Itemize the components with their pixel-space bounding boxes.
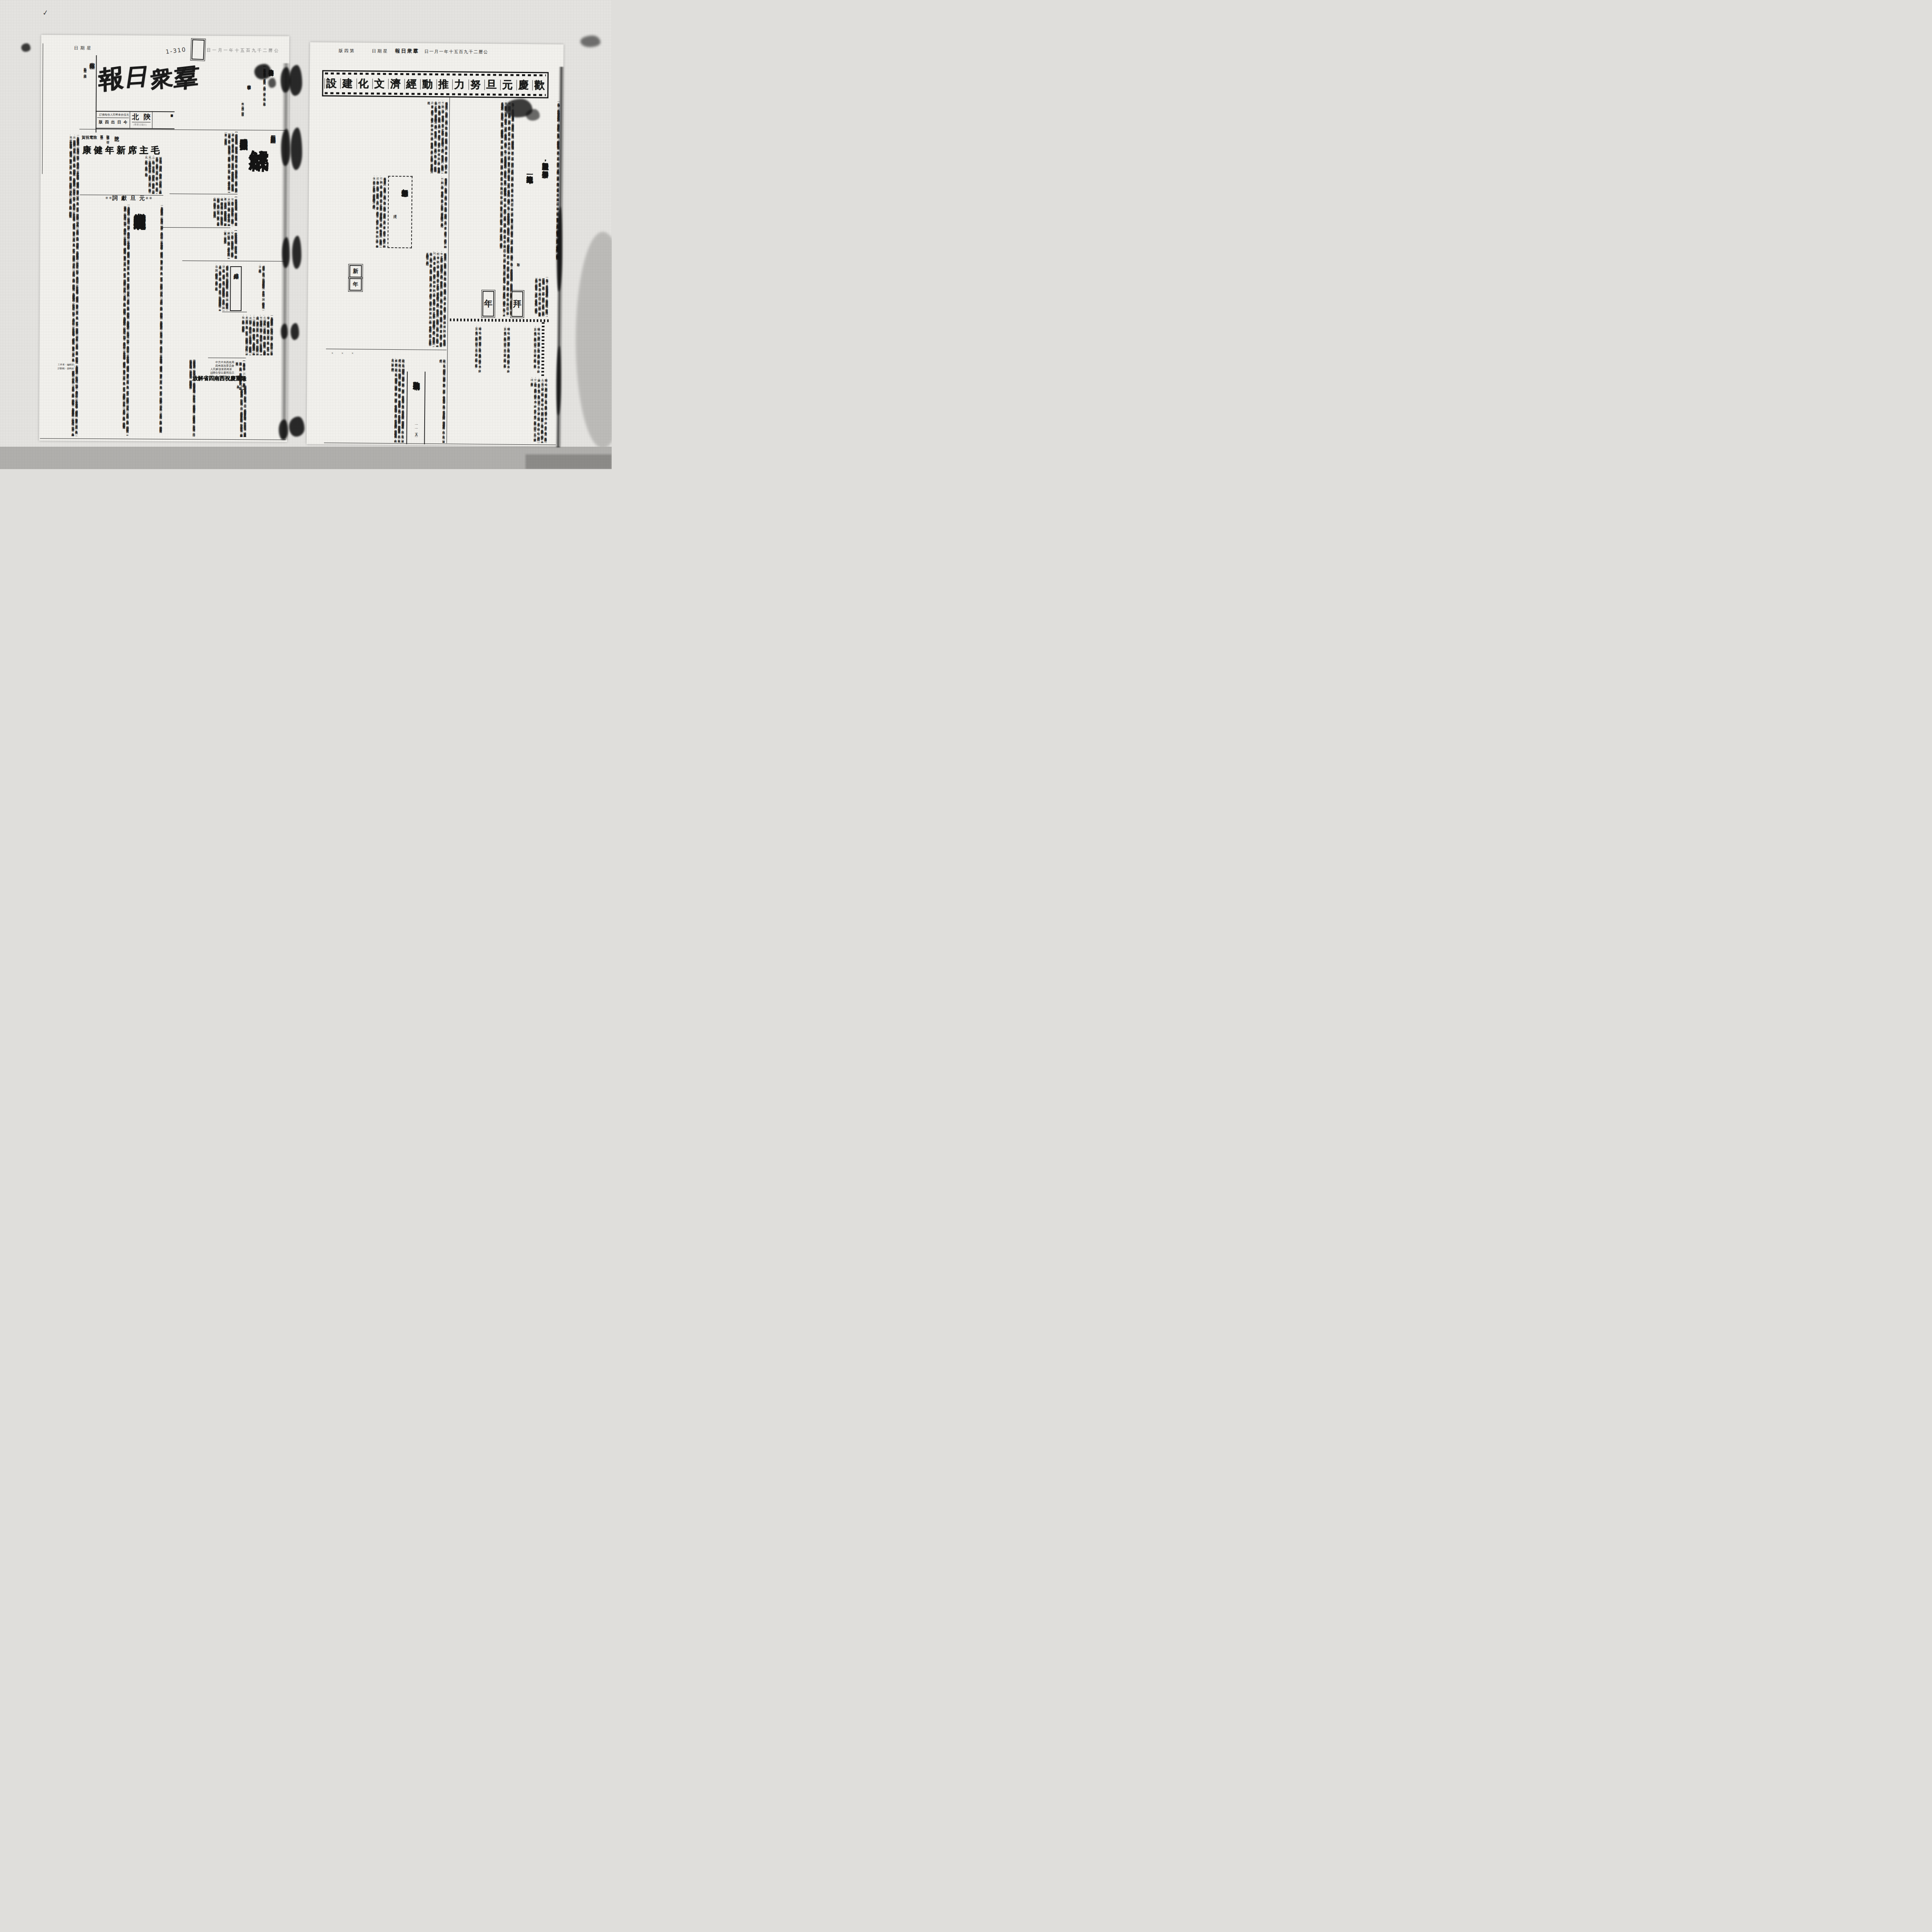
paper-notice-body: 本報三、二兩日共四版，四日照常出版。	[238, 100, 244, 130]
subscription-info: 訂閱及廣告費另照郵局轉各地郵局辦理	[153, 112, 173, 128]
zigzag-divider-right	[541, 322, 544, 376]
newspaper-scan: ✓ 星期日 1-310 完全 公曆二千九百五十年一月一日 恭賀年禧 為推動一九五…	[0, 0, 612, 469]
fold-blob-3	[282, 237, 290, 268]
bainian-lower-columns: 噯嚨嚀，哈哈哈，我和媽媽把話拉：解放軍到處打勝仗，人民政府成立啦！爸爸給我戴新帽…	[449, 376, 548, 443]
sw-top-rule	[208, 358, 246, 359]
editorial-kicker: 元旦獻詞	[112, 195, 145, 202]
ink-mark-top-left	[21, 43, 31, 52]
paper-notice-title: 本報啓事	[245, 82, 252, 99]
chengdu-body-2: 【本報訊】人民解放軍已勝利結束了成都地區的大殲滅戰。胡宗南匪部已於廿七日被我全部…	[162, 196, 237, 226]
edition-note: 今日出四版	[99, 119, 128, 125]
victory-title: 歡慶勝利年	[410, 376, 421, 421]
page-bottom-rule-right	[324, 443, 556, 445]
ornament-right: ※※	[146, 196, 153, 200]
bainian-box-2: 年	[482, 291, 494, 316]
lead-body-main: 一九四九年過去了。這一年是全國人民在中國共產黨和毛主席領導下獲得偉大勝利的一年。…	[450, 99, 514, 316]
sw-org4: 聯合發出慶祝指示	[210, 371, 234, 375]
editorial-body-far-left: 一九四九年是全國解放戰爭獲得偉大勝利的一年。因為陝北已進入和平建設環境，戰鬥動員…	[40, 134, 79, 436]
intro-top-rule	[182, 260, 285, 261]
small-box-1: 新	[349, 265, 362, 277]
chengdu-body-1: 【本報訊】人民解放軍已勝利結束了成都地區的大殲滅戰。胡宗南匪部已於廿七日被我全部…	[170, 131, 238, 193]
credits-2: 計劃稿・資料組	[57, 367, 74, 371]
zagan-body-lower: 新年是每隔三百六十五天就要過一次的。每次的新年都有各種的情景，引起人們各種的感想…	[326, 250, 447, 347]
intro-body-left: 成都是四川省的省會，西南著名的大城市。匪留在四川的胡宗南匪部及其他國民黨部隊約三…	[162, 263, 229, 311]
small-box-2: 年	[349, 278, 362, 291]
region-label: 陝北	[132, 112, 151, 122]
ink-blob-notice-2	[268, 78, 276, 88]
editorial-body-left: 一九四九年是全國解放戰爭獲得偉大勝利的一年。因為陝北已進入和平建設環境，戰鬥動員…	[79, 204, 130, 436]
paid-stamp: 完全	[192, 39, 205, 60]
edition-right: 第四版	[338, 48, 354, 54]
chengdu-rule-1	[170, 194, 238, 194]
center-fold-blob-5	[289, 417, 304, 437]
band-divider-1	[129, 111, 130, 128]
bainian-poem-mid: 噯嚨嚀，哈哈哈，我和媽媽把話拉：解放軍到處打勝仗，人民政府成立啦！爸爸給我戴新帽…	[493, 325, 510, 373]
scanner-corner-blotch	[526, 454, 612, 469]
ink-art-blob-2	[526, 109, 540, 121]
section-rule-1	[79, 129, 286, 131]
scanner-band-bottom	[0, 447, 612, 469]
intro-body-right: 成都是四川省的省會，西南著名的大城市。匪留在四川的胡宗南匪部及其他國民黨部隊約三…	[241, 263, 265, 310]
paper-name-right: 羣衆日報	[395, 48, 418, 55]
intro-bottom-rule	[222, 312, 247, 312]
victory-rule-right	[424, 372, 425, 444]
smudge-top-right	[580, 36, 600, 47]
greeting-line1: 恭賀年禧	[87, 58, 96, 132]
middle-top-columns: 新年是每隔三百六十五天就要過一次的。每次的新年都有各種的情景，引起人們各種的感想…	[328, 99, 448, 174]
middle-section-rule	[326, 349, 447, 350]
fold-blob-5	[279, 420, 288, 440]
editorial-body-right: 一九四九年是全國解放戰爭獲得偉大勝利的一年。因為陝北已進入和平建設環境，戰鬥動員…	[146, 204, 163, 436]
victory-body-right: 除夕的晚上，歡天喜地，機關的同志們圍繞着火爐，回憶被胡匪蹂躪的故事，暢談勝利的一…	[427, 357, 446, 443]
mao-action: 致電祝賀	[82, 135, 97, 140]
chengdu-body-3: 【本報訊】人民解放軍已勝利結束了成都地區的大殲滅戰。胡宗南匪部已於廿七日被我全部…	[162, 229, 237, 259]
page-left: 星期日 1-310 完全 公曆二千九百五十年一月一日 恭賀年禧 為推動一九五零、…	[39, 35, 289, 442]
price-under-rule	[97, 117, 129, 118]
handwritten-number: 1-310	[165, 46, 187, 55]
lead-body-under-headline: 一九四九年過去了。這一年是全國人民在中國共產黨和毛主席領導下獲得偉大勝利的一年。…	[523, 276, 548, 317]
chengdu-headline: 解放成都	[248, 134, 269, 247]
weekday-right: 星期日	[372, 48, 387, 54]
center-fold-blob-2	[291, 128, 302, 170]
banner-headline: 歡慶元旦努力推動經濟文化建設	[322, 70, 549, 98]
date-line-left: 公曆二千九百五十年一月一日	[207, 48, 279, 54]
victory-body-left: 除夕的晚上，歡天喜地，機關的同志們圍繞着火爐，回憶被胡匪蹂躪的故事，暢談勝利的一…	[325, 356, 405, 443]
zagan-title-box: 新年雜感 澤民	[388, 176, 413, 248]
date-line-right: 公曆二千九百五十年一月一日	[424, 49, 488, 55]
sw-left-columns: 指示號召各地舉行隆重慶祝大會和示威遊行，動員廣大人民進行擴大宣傳。指示指出，慶祝…	[162, 357, 196, 437]
center-fold-blob-4	[291, 323, 299, 340]
fold-blob-2	[281, 129, 291, 166]
zigzag-divider-top	[450, 318, 549, 322]
center-fold-blob-1	[289, 65, 302, 96]
victory-byline: ——五人——	[412, 422, 418, 442]
zagan-body-left: 新年是每隔三百六十五天就要過一次的。每次的新年都有各種的情景，引起人們各種的感想…	[327, 175, 386, 248]
lead-headline-2: 迎接一九五零年	[524, 170, 534, 271]
region-under-rule	[132, 122, 151, 122]
pencil-checkmark: ✓	[42, 8, 50, 17]
masthead-calligraphy: 羣衆日報	[103, 65, 200, 111]
sw-body: 指示號召各地舉行隆重慶祝大會和示威遊行，動員廣大人民進行擴大宣傳。指示指出，慶祝…	[197, 383, 247, 437]
zagan-author: 澤民	[391, 212, 397, 235]
bainian-poem-left: 噯嚨嚀，哈哈哈，我和媽媽把話拉：解放軍到處打勝仗，人民政府成立啦！爸爸給我戴新帽…	[449, 325, 481, 373]
bainian-poem-right: 噯嚨嚀，哈哈哈，我和媽媽把話拉：解放軍到處打勝仗，人民政府成立啦！爸爸給我戴新帽…	[522, 325, 540, 374]
chengdu-rule-2	[162, 227, 230, 228]
cross-marks: × × ×	[331, 351, 355, 356]
greeting-line2: 為推動一九五零、文化建設	[81, 65, 87, 131]
zagan-body-right: 新年是每隔三百六十五天就要過一次的。每次的新年都有各種的情景，引起人們各種的感想…	[412, 175, 447, 248]
scanner-shadow-right	[576, 232, 612, 448]
mid-columns: 一九四九年是全國解放戰爭獲得偉大勝利的一年。因為陝北已進入和平建設環境，戰鬥動員…	[162, 314, 273, 355]
weekday-left: 星期日	[74, 45, 91, 51]
victory-rule-left	[406, 371, 408, 444]
lead-headline-1: 加緊生產，努力學習	[539, 157, 549, 260]
chengdu-subtitle: 殘匪卅萬絕大部份被殲滅	[238, 133, 248, 258]
price-line: 訂價每份人民幣叁拾伍元	[97, 113, 129, 117]
chengdu-kicker: 四川大圍殲戰勝利結束	[269, 131, 276, 204]
masthead-left-rule	[95, 55, 97, 133]
editorial-headline: 繼續艱苦奮鬥全力建設陝北	[131, 204, 146, 397]
fold-blob-4	[281, 324, 288, 339]
page-right: 第四版 星期日 羣衆日報 公曆二千九百五十年一月一日 歡慶元旦努力推動經濟文化建…	[306, 42, 563, 446]
region-sub: （羣衆日報社）	[132, 123, 148, 127]
ornament-left: ※※	[105, 196, 113, 200]
lead-author: 劉壽亭	[514, 260, 520, 277]
bainian-box-1: 拜	[511, 291, 523, 317]
page-bottom-rule-left	[40, 438, 286, 440]
sw-headline: 隆重慶祝西南四省解放	[197, 375, 247, 382]
center-fold-blob-3	[292, 236, 301, 269]
intro-title-box: 成都介紹	[230, 266, 242, 311]
band-divider-2	[152, 111, 152, 128]
ink-blob-notice	[254, 64, 271, 79]
mao-body: 頃接十二月二十六日的覆電指示，我們都感到有說不出的高興，並給我們增加了無窮的力量…	[81, 154, 162, 194]
